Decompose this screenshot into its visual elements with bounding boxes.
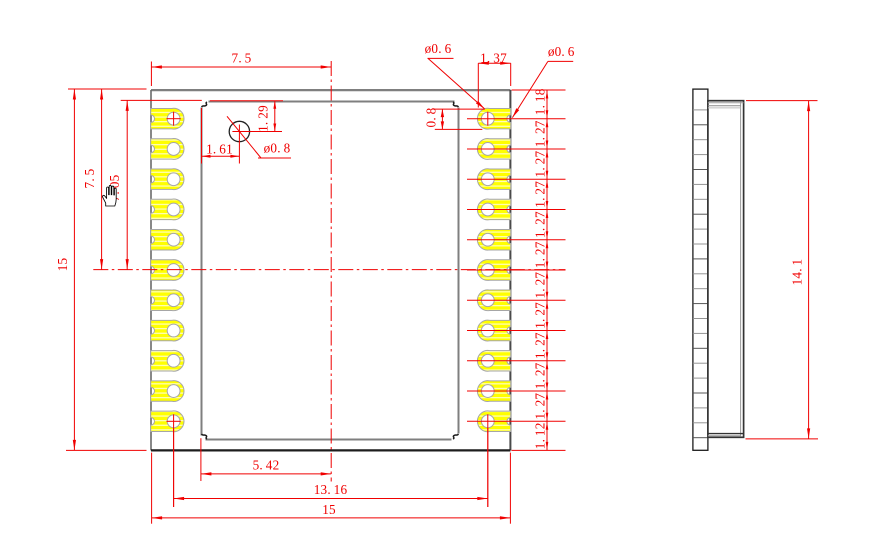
svg-text:1. 27: 1. 27 bbox=[533, 332, 548, 359]
svg-text:13. 16: 13. 16 bbox=[314, 482, 348, 497]
svg-text:15: 15 bbox=[55, 258, 70, 272]
svg-text:15: 15 bbox=[322, 502, 336, 517]
svg-text:1. 29: 1. 29 bbox=[256, 105, 271, 132]
svg-text:1. 18: 1. 18 bbox=[533, 88, 548, 115]
svg-text:7. 5: 7. 5 bbox=[232, 51, 252, 66]
svg-text:1. 27: 1. 27 bbox=[533, 211, 548, 238]
svg-text:ø0. 6: ø0. 6 bbox=[425, 41, 452, 56]
svg-text:1. 27: 1. 27 bbox=[533, 362, 548, 389]
svg-text:1. 27: 1. 27 bbox=[533, 151, 548, 178]
svg-text:1. 12: 1. 12 bbox=[533, 422, 548, 449]
svg-text:14. 1: 14. 1 bbox=[789, 259, 804, 286]
svg-text:1. 27: 1. 27 bbox=[533, 272, 548, 299]
svg-text:ø0. 6: ø0. 6 bbox=[548, 44, 575, 59]
svg-text:1. 27: 1. 27 bbox=[533, 302, 548, 329]
svg-text:0. 8: 0. 8 bbox=[424, 107, 439, 127]
svg-text:1. 27: 1. 27 bbox=[533, 120, 548, 147]
svg-text:1. 61: 1. 61 bbox=[206, 142, 233, 157]
svg-text:1. 27: 1. 27 bbox=[533, 393, 548, 420]
svg-text:1. 37: 1. 37 bbox=[480, 50, 507, 65]
svg-text:7. 5: 7. 5 bbox=[82, 168, 97, 188]
svg-text:5. 42: 5. 42 bbox=[253, 458, 280, 473]
svg-text:ø0. 8: ø0. 8 bbox=[264, 141, 291, 156]
svg-text:1. 27: 1. 27 bbox=[533, 241, 548, 268]
svg-text:1. 27: 1. 27 bbox=[533, 181, 548, 208]
